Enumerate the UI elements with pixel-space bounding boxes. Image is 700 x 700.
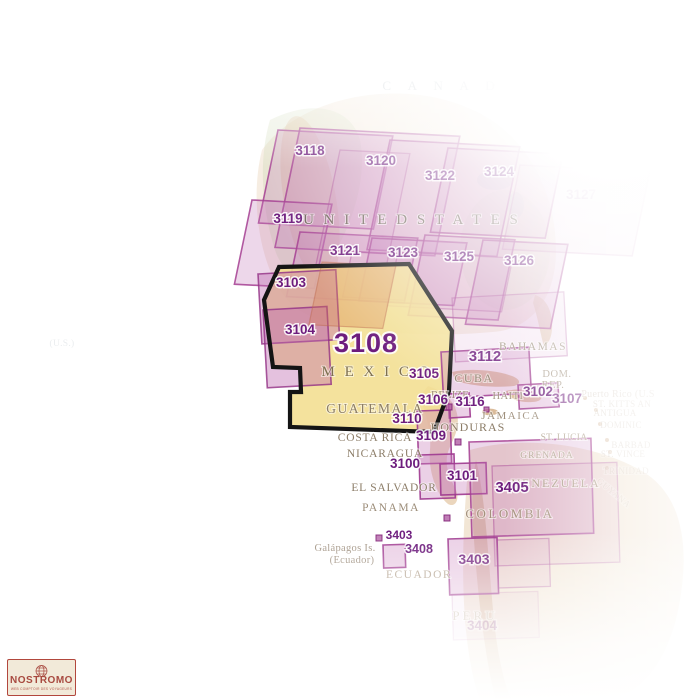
chart-marker[interactable] <box>455 439 461 445</box>
place-label-grenada: GRENADA <box>520 451 573 461</box>
place-label--ecuador-: (Ecuador) <box>330 555 375 566</box>
place-label-haiti: HAITI <box>492 391 523 402</box>
chart-number-3125[interactable]: 3125 <box>444 249 475 264</box>
chart-box-unlabeled-e <box>497 538 550 588</box>
chart-number-3102[interactable]: 3102 <box>523 384 553 399</box>
chart-marker[interactable] <box>376 535 382 541</box>
place-label-el-salvador: EL SALVADOR <box>351 482 436 494</box>
chart-number-3110[interactable]: 3110 <box>392 411 421 426</box>
chart-marker[interactable] <box>444 515 450 521</box>
chart-number-3116[interactable]: 3116 <box>455 394 485 409</box>
chart-number-3106[interactable]: 3106 <box>418 392 449 407</box>
chart-box-unlabeled-baja <box>309 262 396 329</box>
chart-number-3105[interactable]: 3105 <box>409 366 440 381</box>
place-label--u-s-: (U.S.) <box>49 338 74 349</box>
nautical-chart-index-map: C A N A D AU N I T E D S T A T E SM E X … <box>0 0 700 700</box>
chart-number-3107[interactable]: 3107 <box>552 391 582 406</box>
chart-number-3104[interactable]: 3104 <box>285 322 316 337</box>
chart-number-3403[interactable]: 3403 <box>386 528 413 542</box>
chart-number-3112[interactable]: 3112 <box>469 348 502 365</box>
place-label-colombia: COLOMBIA <box>465 506 554 521</box>
place-label-antigua: ANTIGUA <box>593 408 636 418</box>
place-label-st-vince: ST. VINCE <box>601 449 646 459</box>
place-label-gal-pagos-is-: Galápagos Is. <box>314 543 375 554</box>
chart-number-3121[interactable]: 3121 <box>330 243 361 258</box>
place-label-dominic: DOMINIC <box>600 420 642 430</box>
place-label-bahamas: BAHAMAS <box>499 341 567 353</box>
chart-number-3119[interactable]: 3119 <box>273 211 302 226</box>
chart-number-3122[interactable]: 3122 <box>425 168 455 183</box>
chart-number-3404[interactable]: 3404 <box>467 618 498 633</box>
chart-number-3405[interactable]: 3405 <box>495 479 528 496</box>
chart-number-3123[interactable]: 3123 <box>388 245 419 260</box>
place-label-ecuador: ECUADOR <box>386 569 452 581</box>
place-label-dom-: DOM. <box>542 369 571 380</box>
chart-number-3100[interactable]: 3100 <box>390 456 420 471</box>
place-label-trinidad: TRINIDAD <box>603 466 649 476</box>
place-label-cuba: CUBA <box>454 371 493 385</box>
chart-number-3109[interactable]: 3109 <box>416 428 446 443</box>
chart-number-3108[interactable]: 3108 <box>334 328 398 358</box>
place-label-c-a-n-a-d-a: C A N A D A <box>382 78 527 93</box>
chart-box-3408[interactable] <box>383 544 406 568</box>
chart-number-3103[interactable]: 3103 <box>276 275 307 290</box>
chart-number-3403[interactable]: 3403 <box>458 551 489 567</box>
chart-number-3118[interactable]: 3118 <box>295 143 325 158</box>
chart-number-3120[interactable]: 3120 <box>366 153 396 168</box>
chart-number-3124[interactable]: 3124 <box>484 164 515 179</box>
chart-number-3126[interactable]: 3126 <box>504 253 535 268</box>
chart-number-3127[interactable]: 3127 <box>566 187 596 202</box>
chart-number-3408[interactable]: 3408 <box>405 542 433 556</box>
place-label-panama: PANAMA <box>362 502 420 514</box>
chart-index-map-canvas: C A N A D AU N I T E D S T A T E SM E X … <box>0 0 700 700</box>
place-label-u-n-i-t-e-d-s-t-a-t-e-s: U N I T E D S T A T E S <box>303 212 521 228</box>
nostromo-logo[interactable]: NOSTROMO WEB COMPTOIR DES VOYAGEURS <box>7 659 76 696</box>
logo-tagline: WEB COMPTOIR DES VOYAGEURS <box>11 687 72 691</box>
place-label-costa-rica: COSTA RICA <box>338 432 413 444</box>
chart-number-3101[interactable]: 3101 <box>447 468 478 483</box>
logo-brand-text: NOSTROMO <box>10 676 73 686</box>
place-label-st-lucia: ST. LUCIA <box>541 433 588 443</box>
